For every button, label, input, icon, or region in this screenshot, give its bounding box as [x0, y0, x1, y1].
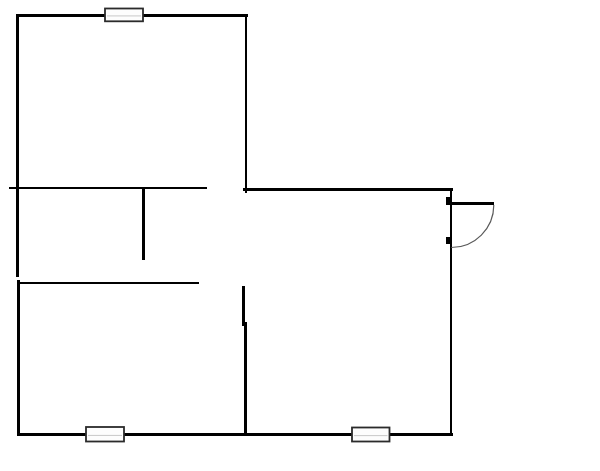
- right-wall: [450, 190, 452, 435]
- door-leaf: [451, 202, 495, 205]
- door-jamb-bottom: [446, 237, 451, 244]
- interior-wall-b: [142, 189, 145, 260]
- left-wall-upper: [16, 14, 19, 277]
- interior-wall-d-upper: [242, 286, 245, 326]
- door-jamb-top: [446, 197, 451, 205]
- bottom-left-window: [86, 427, 124, 442]
- left-wall-lower: [17, 280, 20, 436]
- room1-right-wall: [245, 15, 248, 193]
- bottom-right-window: [352, 428, 390, 442]
- interior-wall-a: [9, 187, 207, 190]
- interior-wall-d-lower: [244, 322, 247, 435]
- interior-wall-c: [18, 282, 199, 285]
- door-swing-arc: [451, 205, 494, 248]
- upper-right-wall: [243, 188, 453, 191]
- top-window: [105, 9, 143, 22]
- floor-plan-canvas: [0, 0, 600, 471]
- floor-plan-viewer: [0, 0, 600, 471]
